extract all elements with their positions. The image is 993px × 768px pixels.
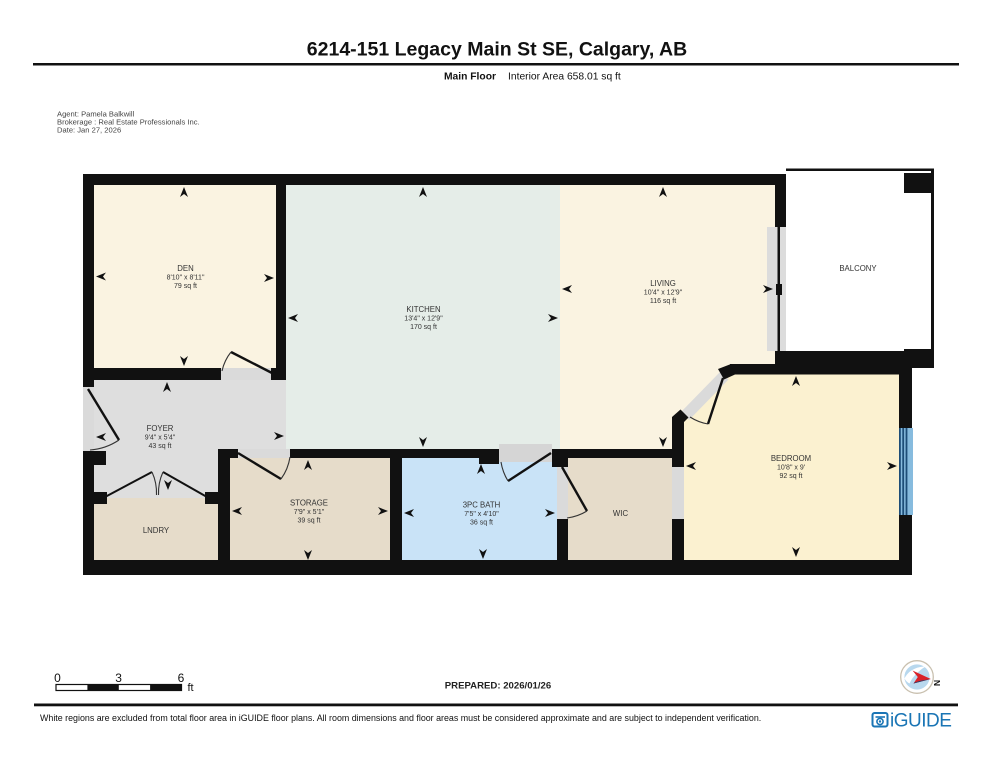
svg-text:7'5" x 4'10": 7'5" x 4'10" [464,511,499,518]
svg-text:ft: ft [188,682,194,694]
svg-text:9'4" x 5'4": 9'4" x 5'4" [145,435,176,442]
svg-text:Interior Area 658.01 sq ft: Interior Area 658.01 sq ft [508,72,621,83]
svg-text:LNDRY: LNDRY [143,526,170,535]
svg-text:LIVING: LIVING [650,279,676,288]
svg-text:BEDROOM: BEDROOM [771,454,811,463]
svg-text:7'9" x 5'1": 7'9" x 5'1" [294,509,325,516]
svg-text:39 sq ft: 39 sq ft [298,518,321,525]
svg-text:iGUIDE: iGUIDE [890,711,951,732]
svg-text:43 sq ft: 43 sq ft [149,443,172,450]
svg-text:Date: Jan 27, 2026: Date: Jan 27, 2026 [57,126,121,135]
svg-text:N: N [932,680,942,686]
svg-text:92 sq ft: 92 sq ft [780,473,803,480]
svg-text:6214-151 Legacy Main St SE, Ca: 6214-151 Legacy Main St SE, Calgary, AB [307,39,687,61]
svg-text:8'10" x 8'11": 8'10" x 8'11" [167,275,205,282]
svg-text:DEN: DEN [177,264,193,273]
svg-text:3: 3 [115,671,122,685]
svg-text:Main Floor: Main Floor [444,72,496,83]
svg-text:170 sq ft: 170 sq ft [410,324,437,331]
svg-text:10'8" x 9': 10'8" x 9' [777,465,805,472]
svg-text:6: 6 [178,671,185,685]
svg-text:0: 0 [54,671,61,685]
svg-text:STORAGE: STORAGE [290,499,328,508]
svg-text:3PC BATH: 3PC BATH [463,501,501,510]
svg-text:White regions are excluded fro: White regions are excluded from total fl… [40,713,761,723]
svg-text:FOYER: FOYER [147,424,174,433]
svg-text:BALCONY: BALCONY [839,264,877,273]
svg-text:79 sq ft: 79 sq ft [174,283,197,290]
svg-text:PREPARED: 2026/01/26: PREPARED: 2026/01/26 [445,681,551,692]
svg-text:36 sq ft: 36 sq ft [470,520,493,527]
svg-text:13'4" x 12'9": 13'4" x 12'9" [404,316,443,323]
svg-text:116 sq ft: 116 sq ft [650,298,676,305]
svg-text:KITCHEN: KITCHEN [406,305,440,314]
svg-text:10'4" x 12'9": 10'4" x 12'9" [644,290,683,297]
svg-text:WIC: WIC [613,509,629,518]
